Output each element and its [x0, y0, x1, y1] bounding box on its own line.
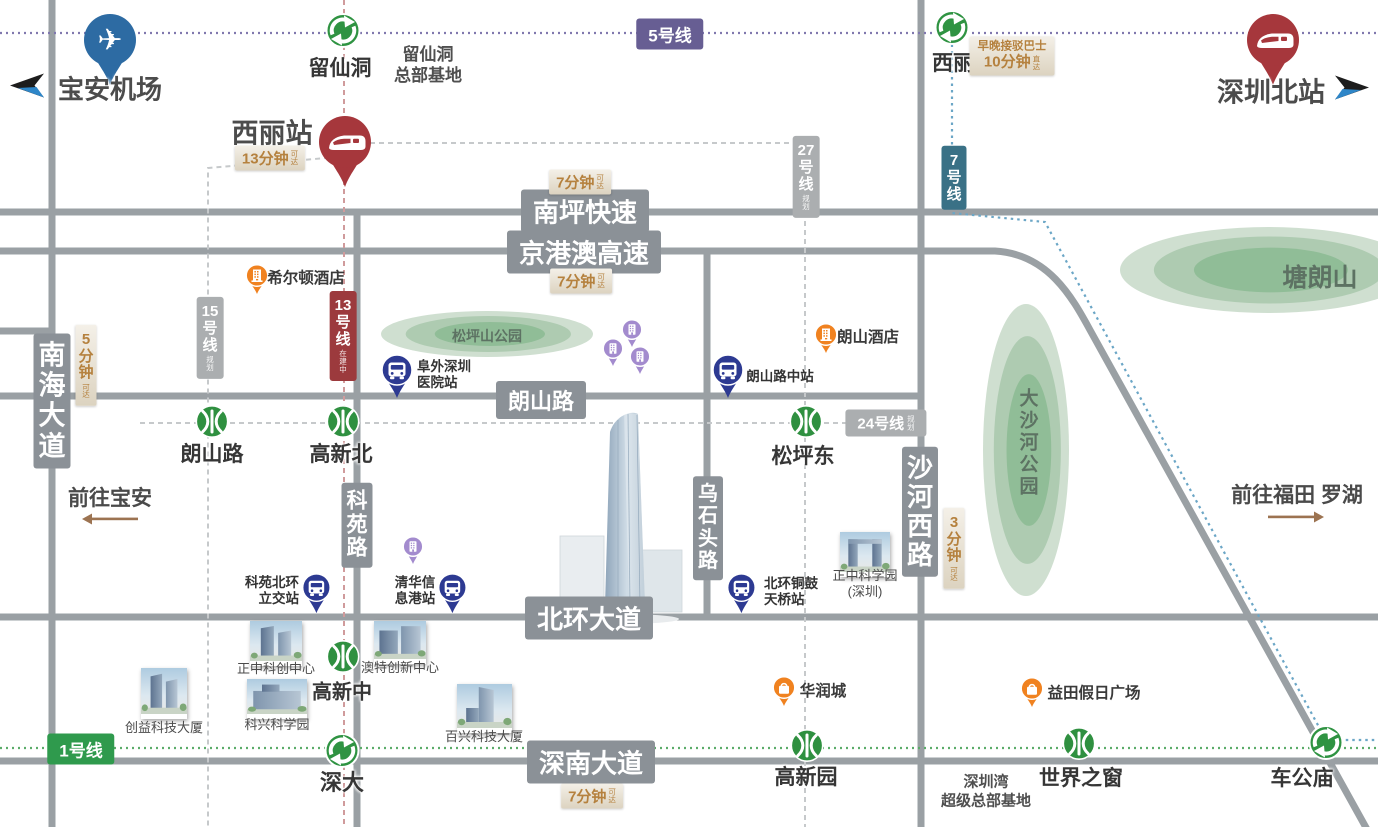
metro-interchange-icon	[1307, 724, 1345, 767]
bus-stop-label-line: 科苑北环	[245, 575, 299, 591]
badge-text: 北环大道	[537, 600, 641, 637]
bus-stop-pin	[710, 354, 746, 405]
travel-time-label: 13分钟可达	[235, 146, 305, 171]
travel-time-label: 5分钟可达	[75, 325, 96, 406]
poi-label: 朗山酒店	[837, 325, 899, 347]
station-label: 留仙洞	[309, 52, 372, 82]
building-photo	[374, 621, 426, 664]
bus-stop-label-line: 北环铜鼓	[764, 576, 818, 592]
road-badge: 北环大道	[525, 597, 653, 640]
shopping-mall-pin	[771, 676, 797, 713]
area-note-line: 留仙洞	[394, 44, 462, 65]
travel-time-label: 3分钟可达	[943, 508, 964, 589]
metro-interchange-icon	[933, 9, 971, 52]
road-badge: 京港澳高速	[507, 231, 661, 274]
bus-stop-pin	[379, 354, 415, 405]
station-label: 西丽	[932, 47, 974, 77]
project-building-pin	[628, 346, 652, 381]
bus-stop-label: 北环铜鼓天桥站	[764, 576, 818, 608]
time-value: 7分钟	[557, 271, 595, 292]
badge-text: 深南大道	[539, 744, 643, 781]
station-label: 高新中	[312, 676, 372, 705]
badge-subtext: 规划	[907, 415, 915, 431]
area-note-line: 超级总部基地	[941, 792, 1031, 811]
shuttle-note: 早晚接驳巴士	[978, 39, 1047, 53]
road-badge: 乌石头路	[693, 476, 723, 580]
direction-right-arrow-icon	[1328, 73, 1370, 108]
badge-text: 南坪快速	[533, 193, 637, 230]
building-name-line2: (深圳)	[832, 584, 897, 600]
station-label: 世界之窗	[1039, 762, 1123, 792]
bus-stop-label: 阜外深圳医院站	[417, 359, 471, 391]
road-badge: 南坪快速	[521, 190, 649, 233]
time-value: 10分钟	[984, 54, 1031, 73]
direction-label: 前往福田 罗湖	[1231, 479, 1363, 509]
road-badge: 沙河西路	[902, 447, 938, 577]
time-value: 13分钟	[242, 148, 289, 169]
building-label: 澳特创新中心	[361, 660, 439, 676]
metro-station-icon	[789, 405, 823, 444]
terminal-label: 宝安机场	[58, 70, 162, 107]
building-name: 百兴科技大厦	[445, 729, 523, 745]
travel-time-label: 早晚接驳巴士10分钟直达	[970, 36, 1055, 75]
shenzhen-transit-location-map: 松坪山公园大沙河公园塘朗山南坪快速京港澳高速朗山路北环大道深南大道南海大道科苑路…	[0, 0, 1378, 827]
direction-left-arrow-icon	[9, 71, 51, 106]
building-name: 澳特创新中心	[361, 660, 439, 676]
travel-time-label: 7分钟可达	[561, 784, 623, 809]
rail-line-badge: 24号线规划	[845, 410, 926, 437]
area-note: 深圳湾超级总部基地	[941, 773, 1031, 811]
badge-text: 24号线	[857, 413, 904, 434]
badge-subtext: 规划	[802, 195, 810, 211]
direction-label: 前往宝安	[68, 482, 152, 512]
bus-stop-label-line: 朗山路中站	[746, 369, 814, 385]
building-name: 正中科学园	[832, 568, 897, 584]
travel-time-label: 7分钟可达	[549, 170, 611, 195]
building-name: 正中科创中心	[237, 661, 315, 677]
time-value: 7分钟	[556, 172, 594, 193]
direction-right-arrow-icon	[1268, 510, 1324, 528]
bus-stop-label: 科苑北环立交站	[245, 575, 299, 607]
rail-line-badge: 7号线	[941, 146, 966, 210]
terminal-label: 深圳北站	[1217, 71, 1325, 110]
bus-stop-pin	[725, 573, 758, 620]
hotel-pin	[244, 264, 270, 301]
bus-stop-label-line: 阜外深圳	[417, 359, 471, 375]
shopping-mall-pin	[1019, 677, 1045, 714]
poi-label: 益田假日广场	[1047, 681, 1140, 703]
bus-stop-label-line: 天桥站	[764, 592, 818, 608]
building-label: 正中科学园(深圳)	[832, 568, 897, 601]
building-photo	[141, 668, 187, 719]
road-badge: 深南大道	[527, 741, 655, 784]
area-note-line: 总部基地	[394, 65, 462, 86]
poi-label: 希尔顿酒店	[267, 266, 345, 288]
area-note-line: 深圳湾	[941, 773, 1031, 792]
rail-line-badge: 27号线规划	[793, 136, 820, 218]
bus-stop-pin	[436, 573, 469, 620]
building-label: 科兴科学园	[244, 717, 309, 733]
metro-station-icon	[326, 640, 360, 679]
rail-line-badge: 13号线在建中	[330, 291, 357, 381]
bus-stop-label-line: 息港站	[395, 591, 436, 607]
area-note: 留仙洞总部基地	[394, 44, 462, 87]
rail-line-badge: 15号线规划	[197, 297, 224, 379]
station-label: 朗山路	[181, 438, 244, 468]
building-label: 百兴科技大厦	[445, 729, 523, 745]
time-suffix: 可达	[596, 175, 604, 190]
project-building-pin	[401, 536, 425, 571]
badge-subtext: 规划	[206, 356, 214, 372]
hotel-pin	[813, 323, 839, 360]
badge-text: 5号线	[648, 22, 691, 47]
metro-interchange-icon	[324, 12, 362, 55]
station-label: 车公庙	[1271, 762, 1334, 792]
hsr-train-pin	[317, 115, 373, 194]
building-name: 创益科技大厦	[125, 720, 203, 736]
badge-text: 京港澳高速	[519, 234, 649, 271]
direction-left-arrow-icon	[82, 512, 138, 530]
park-label: 大沙河公园	[1014, 388, 1041, 498]
station-label: 深大	[320, 765, 364, 797]
time-value: 7分钟	[568, 786, 606, 807]
station-label: 高新北	[310, 438, 373, 468]
bus-stop-pin	[300, 573, 333, 620]
building-label: 创益科技大厦	[125, 720, 203, 736]
bus-stop-label: 清华信息港站	[395, 575, 436, 607]
bus-stop-label-line: 清华信	[395, 575, 436, 591]
road-badge: 南海大道	[34, 334, 71, 469]
time-suffix: 可达	[291, 151, 299, 166]
svg-text:✈: ✈	[97, 23, 122, 58]
rail-line-badge: 5号线	[636, 19, 703, 50]
badge-text: 1号线	[59, 737, 102, 762]
park-label: 塘朗山	[1282, 258, 1357, 294]
rail-line-badge: 1号线	[47, 734, 114, 765]
time-suffix: 可达	[82, 383, 90, 398]
building-name: 科兴科学园	[244, 717, 309, 733]
time-suffix: 可达	[608, 789, 616, 804]
time-suffix: 可达	[950, 566, 958, 581]
bus-stop-label-line: 立交站	[245, 591, 299, 607]
project-building-pin	[601, 338, 625, 373]
bus-stop-label: 朗山路中站	[746, 369, 814, 385]
building-label: 正中科创中心	[237, 661, 315, 677]
badge-text: 朗山路	[508, 384, 574, 416]
park-label: 松坪山公园	[452, 326, 522, 346]
metro-station-icon	[1062, 727, 1096, 766]
badge-subtext: 在建中	[339, 350, 347, 374]
station-label: 松坪东	[772, 440, 835, 470]
building-photo	[247, 679, 307, 719]
time-suffix: 可达	[597, 274, 605, 289]
building-photo	[457, 684, 512, 733]
building-photo	[250, 621, 302, 666]
station-label: 高新园	[775, 761, 838, 791]
road-badge: 科苑路	[342, 483, 373, 568]
road-badge: 朗山路	[496, 381, 586, 419]
bus-stop-label-line: 医院站	[417, 375, 471, 391]
poi-label: 华润城	[800, 679, 847, 701]
travel-time-label: 7分钟可达	[550, 269, 612, 294]
